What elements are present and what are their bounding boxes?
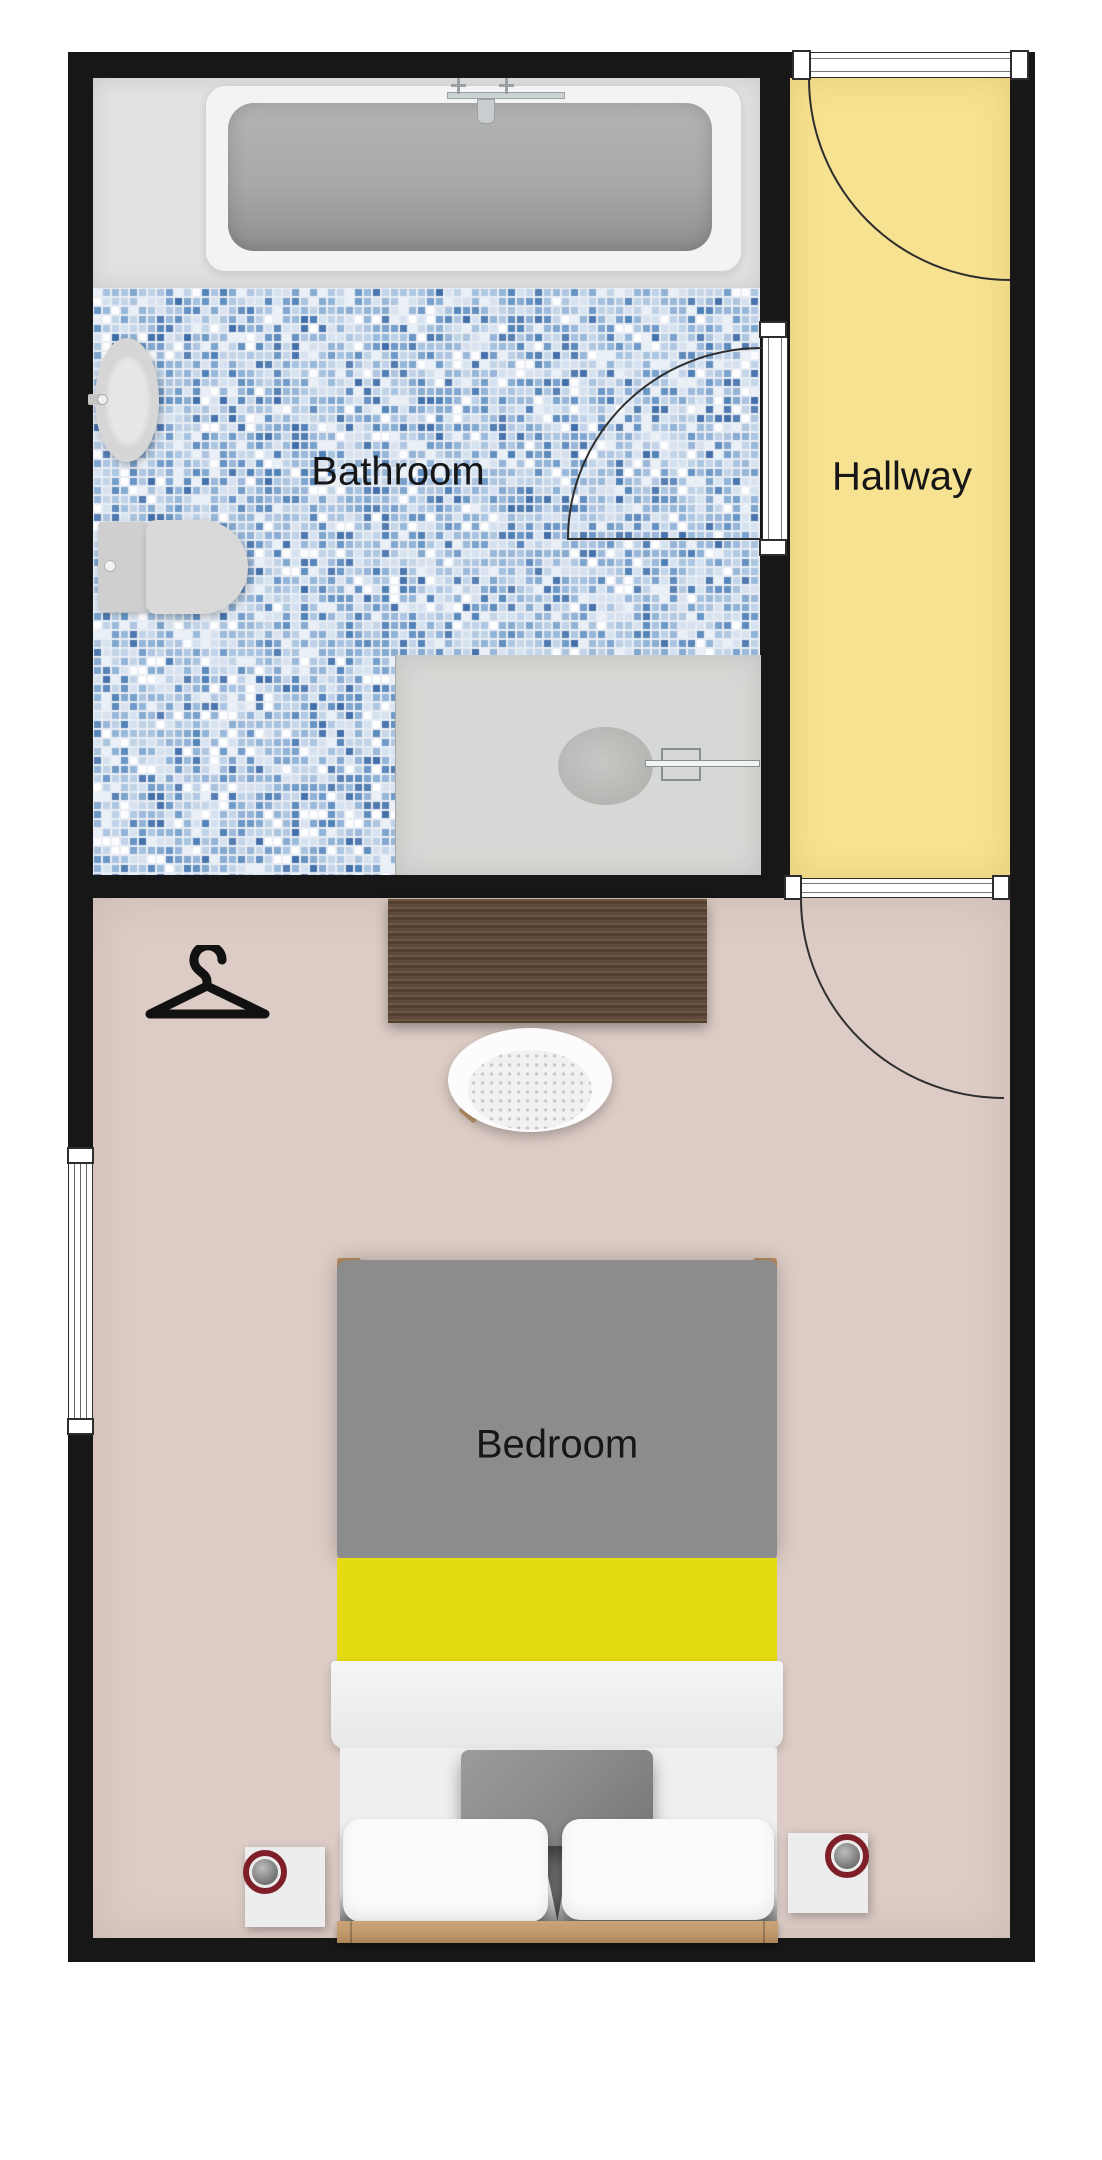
bathtub-spout <box>477 99 495 124</box>
bed-stripe-blanket <box>337 1558 777 1661</box>
toilet-flush-button <box>104 560 116 572</box>
desk-chair-cushion <box>468 1050 592 1130</box>
table-lamp-left-bulb <box>252 1859 278 1885</box>
bathtub-basin <box>228 103 712 251</box>
hallway-label: Hallway <box>832 455 972 500</box>
bed-footboard-joint <box>350 1921 352 1943</box>
bedroom-window-cap-top <box>67 1147 94 1164</box>
desk <box>388 899 707 1023</box>
sink-tap-knob <box>97 394 108 405</box>
floor-plan: Bathroom Hallway Bedroom <box>0 0 1102 2160</box>
bed-sheet <box>331 1661 783 1749</box>
bedroom-window <box>68 1164 93 1418</box>
pillow-left <box>343 1819 548 1922</box>
wall-bathroom-bedroom <box>68 875 790 898</box>
bathtub-tap-icon <box>499 84 514 87</box>
shower-arm <box>645 760 760 767</box>
bedroom-door-jamb-right <box>992 875 1010 900</box>
wall-right <box>1010 52 1035 1962</box>
bathroom-door-leaf <box>567 538 763 540</box>
coat-hanger-icon <box>140 945 275 1025</box>
bathroom-label: Bathroom <box>311 450 484 495</box>
bed-footboard <box>337 1921 778 1943</box>
table-lamp-right-bulb <box>834 1843 860 1869</box>
pillow-right <box>562 1819 774 1920</box>
bedroom-window-cap-bottom <box>67 1418 94 1435</box>
bathroom-door-jamb-top <box>759 321 787 338</box>
bedroom-door-frame <box>802 878 992 898</box>
entry-door-jamb-right <box>1010 50 1029 80</box>
bedroom-label: Bedroom <box>476 1423 638 1468</box>
bathroom-door-frame <box>762 338 788 539</box>
toilet <box>146 520 248 614</box>
shower-drain <box>558 727 653 805</box>
bathtub-tap-icon <box>451 84 466 87</box>
bathroom-door-jamb-bottom <box>759 539 787 556</box>
entry-door-frame <box>811 52 1010 78</box>
bed-duvet <box>337 1260 777 1558</box>
sink-basin <box>104 354 152 448</box>
wall-left <box>68 52 93 1962</box>
bedroom-door-jamb-left <box>784 875 802 900</box>
bed-footboard-joint <box>763 1921 765 1943</box>
entry-door-jamb-left <box>792 50 811 80</box>
